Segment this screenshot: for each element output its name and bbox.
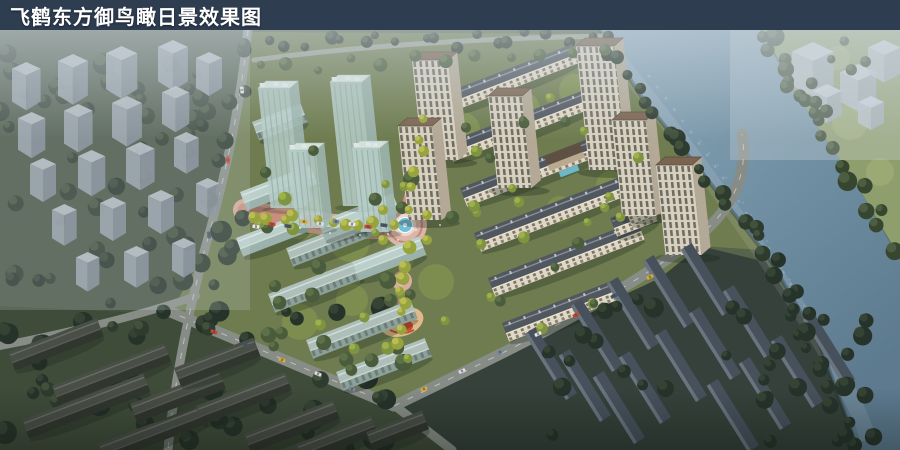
rendering-frame: 飞鹤东方御鸟瞰日景效果图 xyxy=(0,0,900,450)
rendering-image xyxy=(0,0,900,450)
title-text: 飞鹤东方御鸟瞰日景效果图 xyxy=(10,1,262,30)
title-bar: 飞鹤东方御鸟瞰日景效果图 xyxy=(0,0,900,30)
